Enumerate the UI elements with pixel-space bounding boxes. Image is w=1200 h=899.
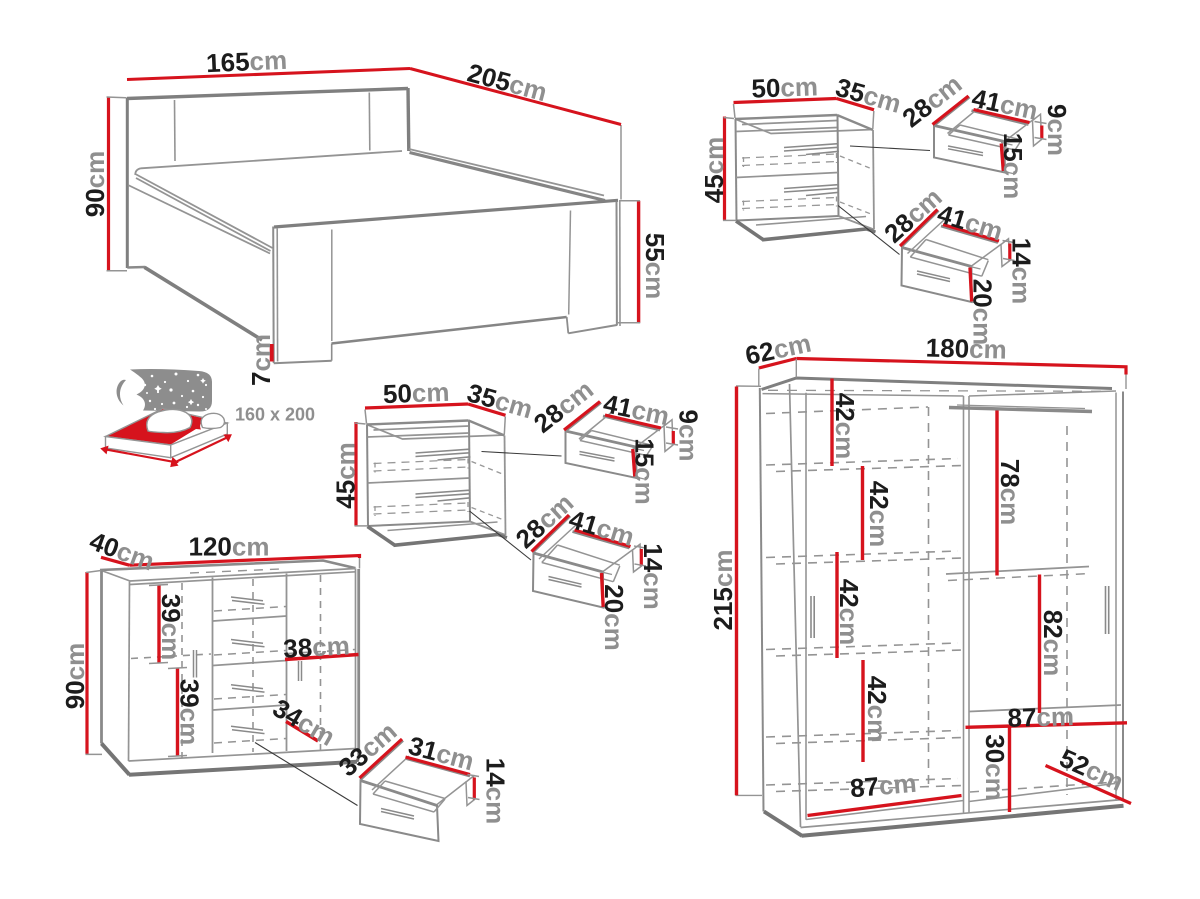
svg-text:42cm: 42cm: [830, 393, 860, 460]
svg-text:39cm: 39cm: [175, 679, 205, 746]
svg-text:90cm: 90cm: [80, 151, 110, 218]
svg-text:9cm: 9cm: [1042, 104, 1072, 156]
svg-text:120cm: 120cm: [189, 532, 270, 562]
svg-text:42cm: 42cm: [862, 676, 892, 743]
svg-text:14cm: 14cm: [1007, 238, 1037, 305]
svg-text:39cm: 39cm: [156, 594, 186, 661]
svg-text:14cm: 14cm: [481, 758, 511, 825]
svg-text:45cm: 45cm: [699, 137, 729, 204]
svg-text:160 x 200: 160 x 200: [235, 405, 315, 425]
svg-text:42cm: 42cm: [864, 481, 894, 548]
svg-text:15cm: 15cm: [998, 133, 1028, 200]
svg-text:78cm: 78cm: [995, 459, 1025, 526]
svg-text:165cm: 165cm: [206, 45, 288, 79]
svg-text:215cm: 215cm: [708, 550, 738, 631]
svg-text:180cm: 180cm: [925, 332, 1007, 364]
svg-text:50cm: 50cm: [751, 71, 819, 103]
svg-text:38cm: 38cm: [283, 630, 351, 663]
svg-text:30cm: 30cm: [980, 734, 1010, 801]
svg-text:7cm: 7cm: [246, 334, 276, 386]
svg-text:55cm: 55cm: [640, 233, 670, 300]
svg-text:42cm: 42cm: [834, 579, 864, 646]
svg-text:87cm: 87cm: [1007, 701, 1074, 733]
svg-text:87cm: 87cm: [849, 768, 918, 804]
svg-text:90cm: 90cm: [60, 643, 90, 710]
svg-text:82cm: 82cm: [1038, 610, 1068, 677]
